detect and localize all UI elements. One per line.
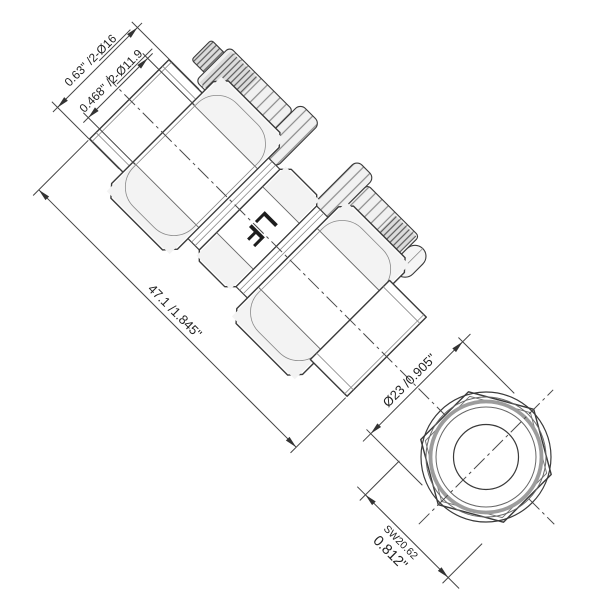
dim-d23-extension-line-left [366, 429, 422, 485]
dim-d23-label: Ø23 /0.905" [380, 350, 440, 410]
dim-length-extension-line-left [33, 140, 88, 195]
drawing-canvas: LF [0, 0, 600, 600]
dim-length-label: 47.1 /1.845" [145, 281, 205, 341]
dim-d23-extension-line-right [458, 337, 514, 393]
technical-drawing: LF [0, 0, 600, 600]
dim-length-extension-line-right [291, 398, 346, 453]
